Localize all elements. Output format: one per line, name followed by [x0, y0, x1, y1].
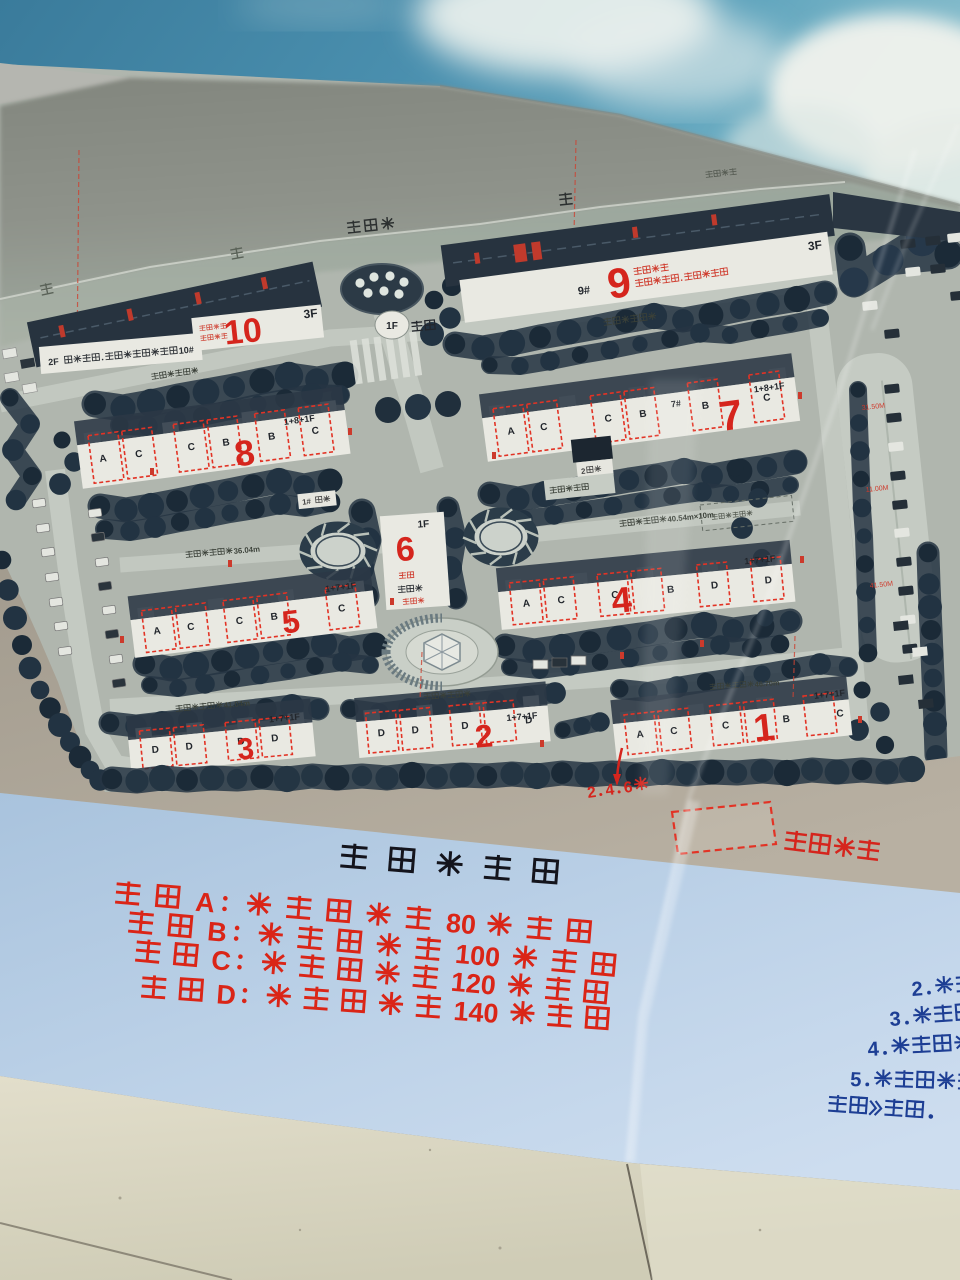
svg-text:6: 6: [394, 530, 416, 569]
svg-text:C: C: [210, 945, 232, 977]
svg-text:3F: 3F: [807, 238, 823, 254]
svg-text:3: 3: [236, 732, 256, 766]
svg-text:A: A: [153, 626, 162, 638]
svg-text:C: C: [135, 449, 144, 461]
svg-text:2: 2: [911, 978, 924, 1001]
svg-text:2: 2: [474, 717, 495, 754]
svg-text:C: C: [338, 603, 347, 615]
svg-text:5: 5: [850, 1069, 862, 1091]
svg-text:1: 1: [751, 706, 776, 750]
svg-text:C: C: [540, 422, 549, 434]
svg-text:D: D: [151, 745, 159, 757]
svg-text:D: D: [271, 733, 279, 745]
svg-text:D: D: [461, 721, 469, 733]
svg-text:9#: 9#: [577, 284, 591, 297]
svg-text:D: D: [710, 580, 718, 592]
svg-text:B: B: [206, 916, 228, 948]
svg-text:A: A: [507, 426, 516, 438]
svg-text:C: C: [311, 425, 320, 437]
svg-text:B: B: [267, 431, 276, 443]
svg-text:C: C: [722, 720, 730, 732]
svg-text:C: C: [187, 622, 196, 634]
svg-text:4: 4: [867, 1038, 880, 1061]
svg-text:3: 3: [889, 1008, 902, 1031]
svg-text:4: 4: [610, 578, 634, 621]
svg-text:1#: 1#: [302, 497, 312, 507]
svg-text:C: C: [763, 392, 772, 404]
svg-text:1F: 1F: [386, 321, 398, 332]
svg-text:C: C: [836, 708, 844, 720]
svg-text:10: 10: [222, 311, 264, 353]
svg-text:C: C: [557, 595, 565, 607]
svg-text:C: C: [604, 413, 613, 425]
svg-text:80: 80: [445, 908, 477, 940]
svg-text:140: 140: [453, 996, 500, 1029]
svg-text:C: C: [187, 442, 196, 454]
svg-text:46.70m: 46.70m: [754, 678, 780, 689]
svg-text:C: C: [235, 616, 244, 628]
svg-text:D: D: [215, 979, 236, 1010]
svg-text:A: A: [99, 453, 108, 465]
svg-text:1F: 1F: [417, 519, 429, 531]
svg-text:B: B: [639, 409, 648, 421]
svg-text:A: A: [194, 887, 216, 919]
svg-text:D: D: [185, 741, 193, 753]
svg-text:B: B: [270, 611, 279, 623]
svg-text:B: B: [782, 714, 790, 726]
svg-text:B: B: [222, 437, 231, 449]
svg-text:3F: 3F: [303, 306, 318, 321]
svg-text:A: A: [522, 598, 530, 610]
svg-text:D: D: [377, 728, 385, 740]
svg-text:2F: 2F: [48, 356, 60, 367]
svg-text:B: B: [701, 400, 710, 412]
svg-text:10#: 10#: [178, 345, 194, 356]
svg-text:D: D: [411, 725, 419, 737]
